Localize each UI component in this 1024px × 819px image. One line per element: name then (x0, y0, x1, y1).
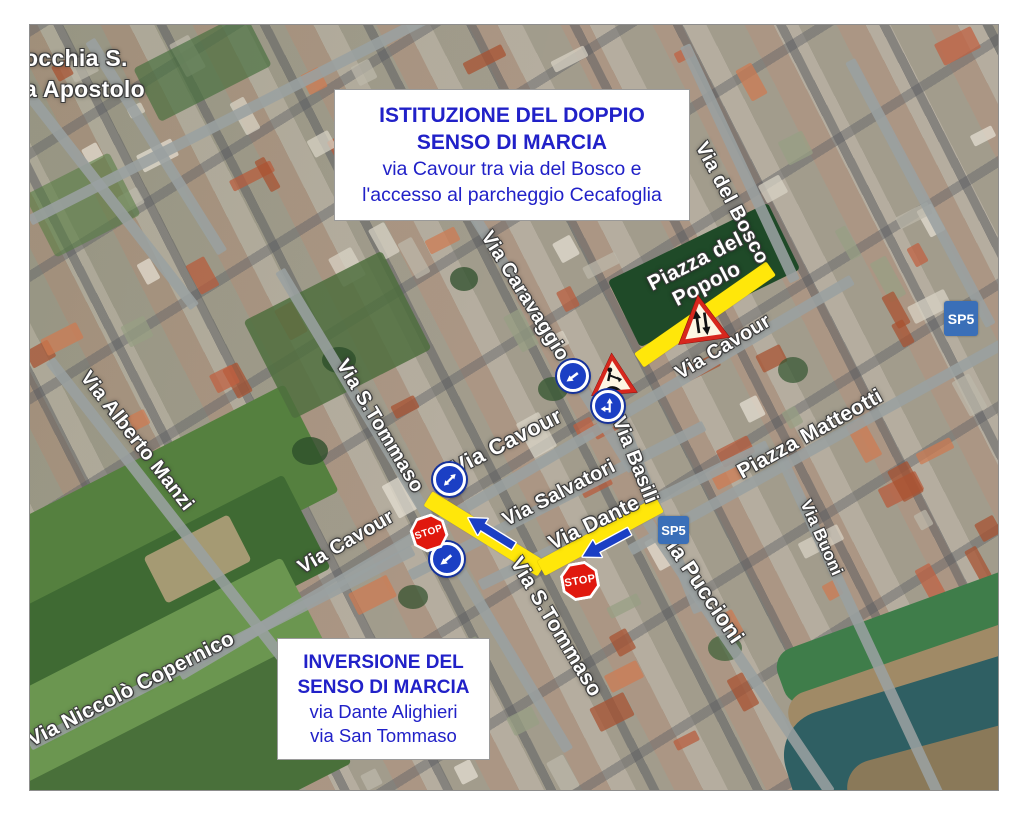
building-roof (735, 62, 768, 101)
building-roof (881, 291, 911, 329)
building-roof (185, 256, 219, 295)
trees (450, 267, 478, 291)
building-roof (609, 628, 637, 657)
building-roof (360, 768, 383, 791)
stop-sign-label: STOP (561, 562, 599, 600)
building-roof (350, 59, 377, 87)
building-roof (974, 515, 999, 543)
building-roof (915, 437, 954, 465)
stop-sign: STOP (558, 559, 602, 603)
trees (778, 357, 808, 383)
arrows-straight-or-left-sign (592, 390, 624, 422)
building-roof (424, 226, 460, 254)
road (845, 58, 996, 328)
building-roof (604, 660, 645, 693)
building-roof (390, 395, 420, 419)
building-roof (589, 692, 635, 732)
building-roof (673, 730, 700, 751)
notice-title: ISTITUZIONE DEL DOPPIO (379, 102, 645, 130)
building-roof (120, 315, 154, 347)
notice-title: INVERSIONE DEL (303, 650, 463, 675)
sp5-badge: SP5 (944, 301, 978, 336)
notice-body: via Cavour tra via del Bosco e (382, 157, 641, 183)
notice-body: via Dante Alighieri (309, 700, 457, 724)
building-roof (40, 322, 84, 356)
building-roof (462, 44, 506, 75)
sp5-badge: SP5 (658, 516, 689, 544)
building-roof (546, 754, 580, 791)
notice-body: l'accesso al parcheggio Cecafoglia (362, 183, 662, 209)
building-roof (582, 252, 620, 280)
two-way-traffic-warning-sign (671, 289, 731, 346)
notice-body: via San Tommaso (310, 724, 457, 748)
building-roof (453, 759, 478, 785)
trees (398, 585, 428, 609)
street-label-parrocchia: occhia S. a Apostolo (29, 43, 145, 105)
building-roof (552, 235, 580, 264)
trees (292, 437, 328, 465)
building-roof (739, 395, 766, 423)
building-roof (556, 286, 580, 313)
arrows-two-way-diagonal-sign (433, 463, 466, 496)
building-roof (970, 125, 997, 147)
building-roof (606, 593, 642, 619)
notice-box-top: ISTITUZIONE DEL DOPPIO SENSO DI MARCIA v… (334, 89, 690, 221)
building-roof (913, 509, 933, 531)
building-roof (906, 242, 928, 267)
building-roof (306, 130, 336, 158)
building-roof (550, 45, 588, 72)
arrow-down-left-sign (557, 360, 589, 392)
notice-title: SENSO DI MARCIA (297, 675, 469, 700)
notice-title: SENSO DI MARCIA (417, 129, 607, 157)
traffic-ordinance-map-flyer: { "notice_boxes": { "top": { "title_line… (0, 0, 1024, 819)
building-roof (778, 130, 814, 165)
satellite-map: occhia S. a Apostolo Via del Bosco Piazz… (29, 24, 999, 791)
building-roof (835, 225, 862, 261)
building-roof (951, 373, 987, 417)
street-label-via-basili: Via Basili (607, 413, 664, 507)
building-roof (506, 706, 540, 737)
street-label-via-s-tommaso-upper: Via S.Tommaso (331, 355, 429, 497)
building-roof (934, 26, 981, 66)
notice-box-bottom: INVERSIONE DEL SENSO DI MARCIA via Dante… (277, 638, 490, 760)
